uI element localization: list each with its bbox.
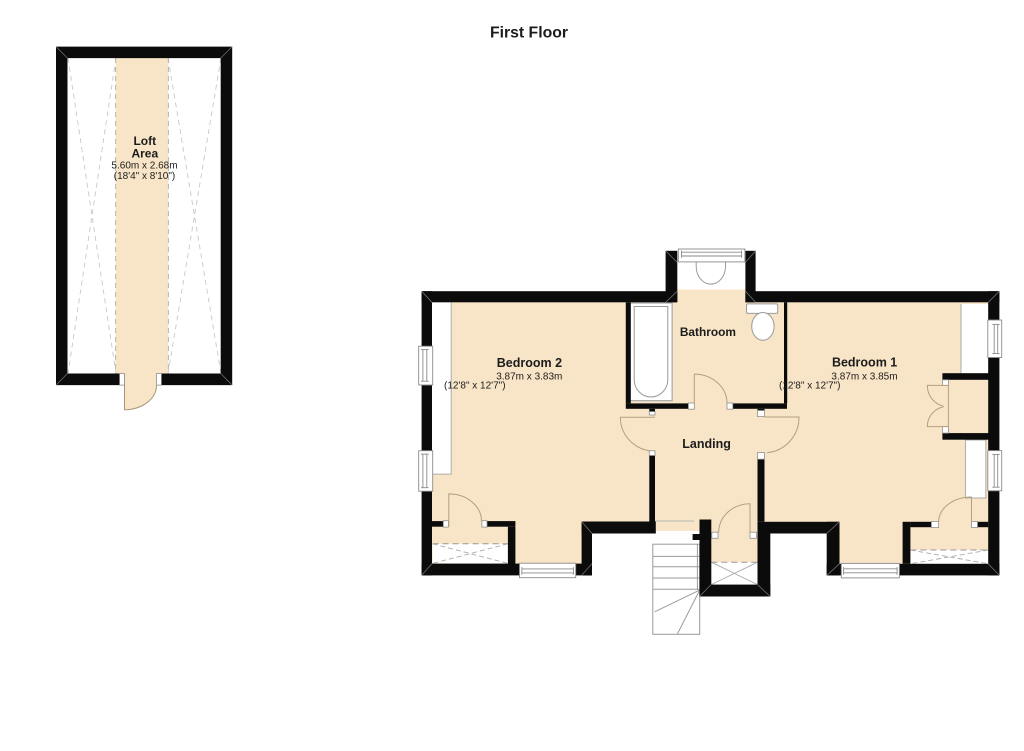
svg-text:3.87m x 3.83m: 3.87m x 3.83m — [496, 371, 562, 382]
svg-text:Bedroom 1: Bedroom 1 — [832, 355, 897, 369]
svg-text:First Floor: First Floor — [490, 25, 568, 42]
svg-text:(12'8" x 12'7"): (12'8" x 12'7") — [779, 380, 841, 391]
svg-text:Landing: Landing — [682, 437, 731, 451]
svg-text:(12'8" x 12'7"): (12'8" x 12'7") — [444, 380, 506, 391]
svg-text:Bedroom 2: Bedroom 2 — [497, 356, 562, 370]
svg-text:3.87m x 3.85m: 3.87m x 3.85m — [831, 371, 897, 382]
svg-text:Area: Area — [131, 147, 158, 161]
svg-text:Bathroom: Bathroom — [680, 325, 736, 339]
svg-text:5.60m x 2.68m: 5.60m x 2.68m — [111, 160, 177, 171]
svg-text:(18'4" x 8'10"): (18'4" x 8'10") — [114, 171, 176, 182]
